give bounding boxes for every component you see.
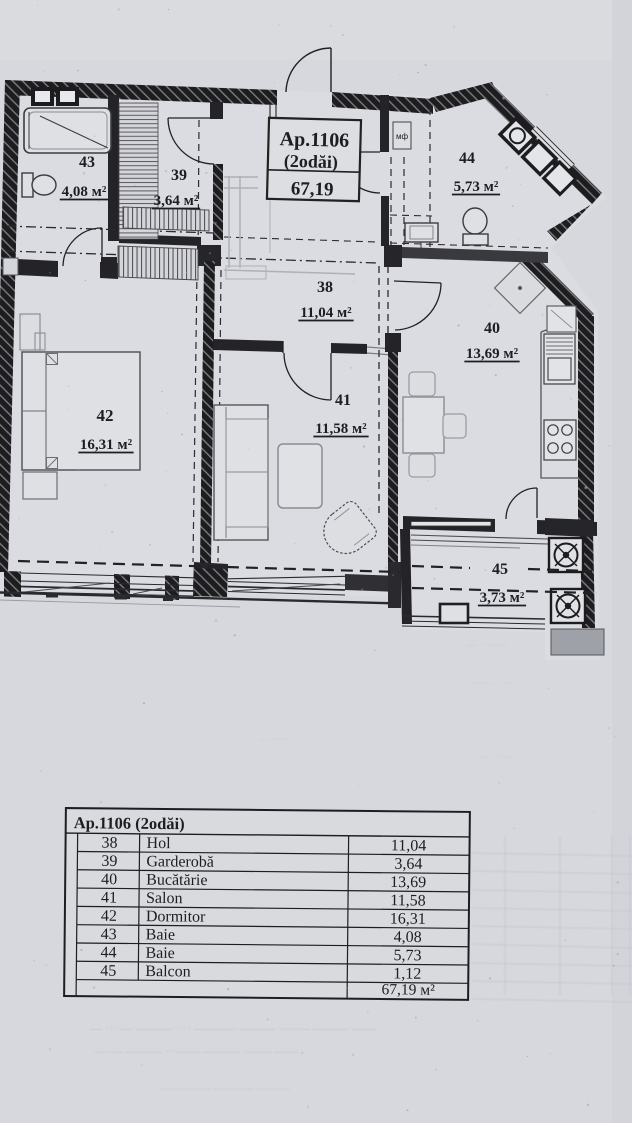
svg-text:39: 39 <box>101 853 117 870</box>
svg-text:42: 42 <box>97 406 114 425</box>
svg-text:43: 43 <box>79 154 95 171</box>
svg-text:—·— ·· —: —·— ·· — <box>469 678 516 689</box>
svg-text:Baie: Baie <box>145 945 174 962</box>
svg-text:39: 39 <box>171 167 187 184</box>
svg-text:16,31: 16,31 <box>390 910 426 927</box>
svg-text:11,04: 11,04 <box>391 837 427 854</box>
svg-text:11,58 м²: 11,58 м² <box>315 421 367 437</box>
svg-text:— ····— ——— ···· ——–— ——— ·—·—: — ····— ——— ···· ——–— ——— ·—·— ——— —— <box>89 1021 377 1035</box>
svg-text:38: 38 <box>101 835 117 852</box>
svg-text:43: 43 <box>101 926 117 943</box>
svg-text:5,73 м²: 5,73 м² <box>454 179 499 195</box>
svg-text:41: 41 <box>101 889 117 906</box>
svg-text:41: 41 <box>335 392 351 409</box>
svg-text:44: 44 <box>100 944 116 961</box>
svg-text:Salon: Salon <box>146 890 183 907</box>
svg-text:Ap.1106 (2odăi): Ap.1106 (2odăi) <box>74 813 185 833</box>
svg-text:4,08: 4,08 <box>394 929 422 946</box>
svg-text:— ···—: — ···— <box>479 752 513 763</box>
svg-text:3,64: 3,64 <box>394 856 422 873</box>
svg-text:Balcon: Balcon <box>145 963 190 980</box>
svg-text:—·— ——— ···—— ——— ·—— ——: —·— ——— ···—— ——— ·—— —— <box>94 1044 299 1058</box>
svg-text:3,64 м²: 3,64 м² <box>154 193 199 209</box>
svg-text:13,69 м²: 13,69 м² <box>466 346 519 362</box>
svg-text:67,19 м²: 67,19 м² <box>381 981 435 999</box>
svg-text:(2odăi): (2odăi) <box>284 151 339 173</box>
svg-text:44: 44 <box>459 150 475 167</box>
svg-text:Ap.1106: Ap.1106 <box>279 128 349 152</box>
svg-text:5,73: 5,73 <box>393 947 421 964</box>
svg-text:·· — ——: ·· — —— <box>250 734 293 745</box>
svg-text:Hol: Hol <box>146 835 171 852</box>
svg-text:·— ——— —·—·— ———: ·— ——— —·—·— ——— <box>160 1083 290 1095</box>
svg-text:Baie: Baie <box>146 926 175 943</box>
svg-text:Garderobă: Garderobă <box>146 853 214 871</box>
svg-text:42: 42 <box>101 908 117 925</box>
svg-text:67,19: 67,19 <box>291 178 334 200</box>
svg-text:мф: мф <box>396 132 409 141</box>
svg-text:40: 40 <box>484 320 500 337</box>
svg-text:· — ·· ——: · — ·· —— <box>460 640 508 651</box>
svg-text:11,58: 11,58 <box>390 892 426 909</box>
svg-text:40: 40 <box>101 871 117 888</box>
svg-text:Dormitor: Dormitor <box>146 908 206 926</box>
svg-text:1,12: 1,12 <box>393 965 421 982</box>
svg-text:4,08 м²: 4,08 м² <box>62 184 107 200</box>
svg-text:Bucătărie: Bucătărie <box>146 872 207 890</box>
svg-text:45: 45 <box>492 561 508 578</box>
svg-text:16,31 м²: 16,31 м² <box>80 437 133 453</box>
svg-text:38: 38 <box>317 279 333 296</box>
svg-text:45: 45 <box>100 963 116 980</box>
svg-text:11,04 м²: 11,04 м² <box>300 305 352 321</box>
svg-text:3,73 м²: 3,73 м² <box>480 590 525 606</box>
